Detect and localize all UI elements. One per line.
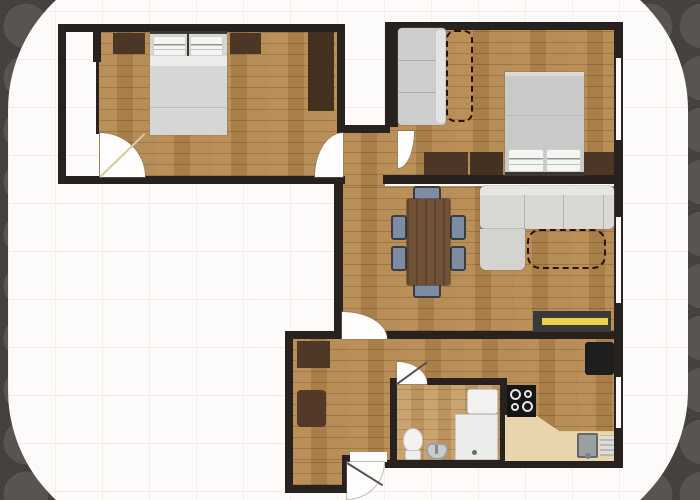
dresser-3 <box>584 152 614 175</box>
dining-chair-right-2 <box>450 246 466 271</box>
wall <box>427 378 507 385</box>
wardrobe-placeholder-dashed <box>446 30 473 122</box>
wall <box>285 331 343 339</box>
sofa-chaise <box>480 229 525 270</box>
dresser-2 <box>470 152 503 175</box>
bedroom2-window <box>614 58 623 140</box>
burner-icon <box>522 401 533 412</box>
bed1-blanket-seam <box>150 107 227 108</box>
fridge <box>585 342 614 375</box>
kitchen-faucet <box>585 453 591 459</box>
wall <box>614 303 623 377</box>
floor-plan-scene <box>0 0 700 500</box>
coffee-table-placeholder-dashed <box>527 229 606 269</box>
toilet-bowl <box>403 428 423 452</box>
wall <box>390 378 397 467</box>
hall-cabinet-lower <box>297 390 326 427</box>
shower-drain <box>472 450 477 455</box>
washbasin-stem <box>435 445 438 454</box>
bedroom2-sofa-back <box>436 30 445 123</box>
bed2-blanket-seam <box>505 115 584 116</box>
kitchen-window <box>614 377 623 428</box>
sofa-backrest <box>480 186 614 195</box>
sofa-cushion-seam <box>524 195 525 229</box>
wall <box>337 24 345 131</box>
tv-soundbar <box>542 318 608 325</box>
wall <box>285 485 350 493</box>
dining-chair-left-1 <box>391 215 407 240</box>
wall <box>383 175 623 184</box>
bed2-pillow-left <box>508 149 544 172</box>
bedroom2-sofa-cushion-seam <box>399 92 436 93</box>
wall <box>58 24 66 184</box>
wall <box>285 331 293 493</box>
hallway-lower-floor <box>293 460 342 485</box>
dining-chair-right-1 <box>450 215 466 240</box>
bed1-pillow-left <box>153 36 186 56</box>
nightstand-left <box>113 33 145 54</box>
balcony-glazing <box>96 62 99 134</box>
hall-cabinet-upper <box>297 341 330 368</box>
burner-icon <box>511 403 519 411</box>
entrance-opening <box>350 452 387 462</box>
dresser-1 <box>424 152 468 175</box>
dining-table <box>407 199 450 285</box>
corridor-floor <box>343 133 385 186</box>
washing-machine <box>467 389 498 414</box>
bed1-pillow-right <box>190 36 223 56</box>
wall <box>614 22 623 58</box>
sofa-cushion-seam <box>563 195 564 229</box>
bed2-pillow-right <box>546 149 581 172</box>
corridor-wall <box>337 125 390 133</box>
wall <box>614 140 623 217</box>
wardrobe <box>308 32 334 111</box>
sofa-cushion-seam <box>603 195 604 229</box>
wall <box>385 22 398 127</box>
burner-icon <box>510 389 521 400</box>
nightstand-right <box>230 33 261 54</box>
toilet-tank <box>405 450 421 460</box>
bedroom2-sofa-cushion-seam <box>399 60 436 61</box>
bed1-sheet-fold <box>150 56 227 66</box>
bed2-headboard <box>505 172 584 175</box>
wall <box>381 331 623 339</box>
living-room-window <box>614 217 623 303</box>
bedroom2-door-floor <box>385 127 398 175</box>
burner-icon <box>524 390 532 398</box>
bed2-foot-edge <box>505 72 584 76</box>
bed1-pillow-divider <box>187 31 189 57</box>
dining-chair-left-2 <box>391 246 407 271</box>
balcony-pier-wall <box>93 31 101 62</box>
sink-drainer <box>600 435 614 456</box>
